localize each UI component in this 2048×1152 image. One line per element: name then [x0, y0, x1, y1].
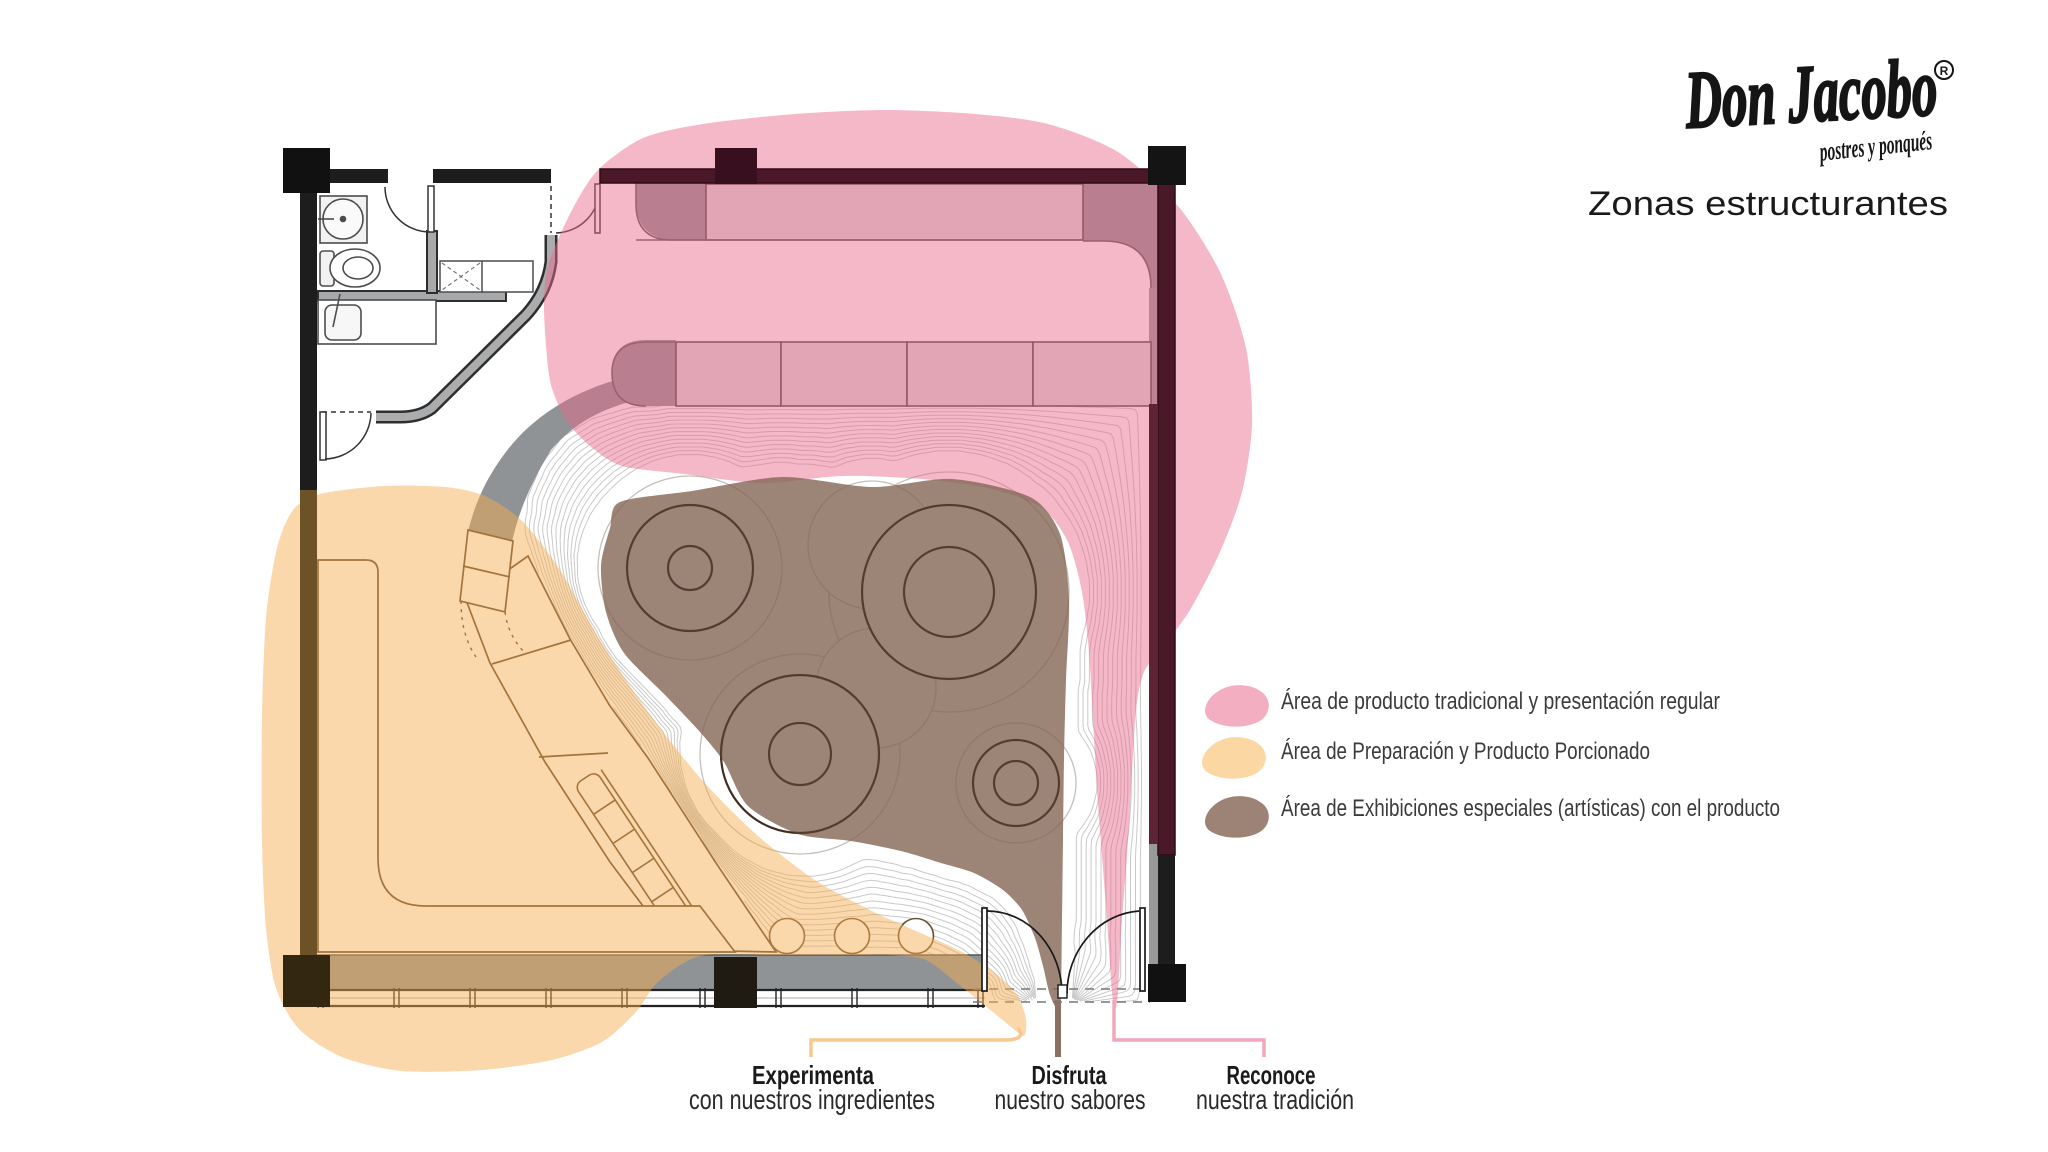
svg-text:Área de producto tradicional y: Área de producto tradicional y presentac… [1281, 688, 1720, 715]
svg-text:con nuestros ingredientes: con nuestros ingredientes [689, 1084, 935, 1115]
svg-text:nuestro sabores: nuestro sabores [995, 1084, 1146, 1115]
svg-text:Zonas estructurantes: Zonas estructurantes [1588, 185, 1948, 223]
svg-text:R: R [1940, 64, 1949, 78]
svg-text:Área de Preparación y Producto: Área de Preparación y Producto Porcionad… [1281, 738, 1650, 765]
svg-text:nuestra tradición: nuestra tradición [1196, 1084, 1354, 1115]
svg-text:Área de Exhibiciones especiale: Área de Exhibiciones especiales (artísti… [1281, 795, 1780, 822]
